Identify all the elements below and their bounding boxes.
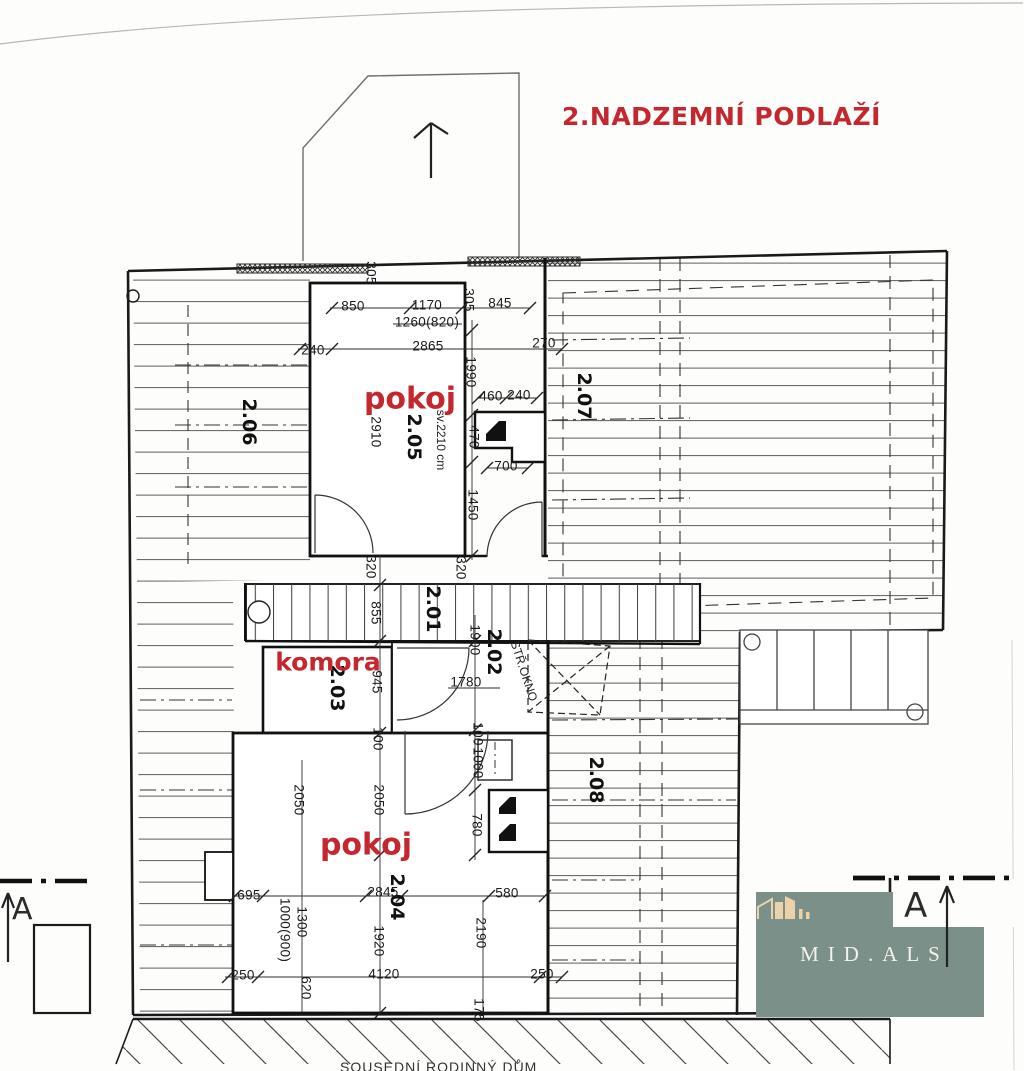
section-markers-overlay [0, 0, 1024, 1071]
page-title: 2.NADZEMNÍ PODLAŽÍ [562, 102, 881, 131]
section-marker-left: A [12, 892, 33, 927]
floor-plan-page: 2.NADZEMNÍ PODLAŽÍ 30530585011701260(820… [0, 0, 1024, 1071]
section-marker-right: A [904, 886, 927, 926]
